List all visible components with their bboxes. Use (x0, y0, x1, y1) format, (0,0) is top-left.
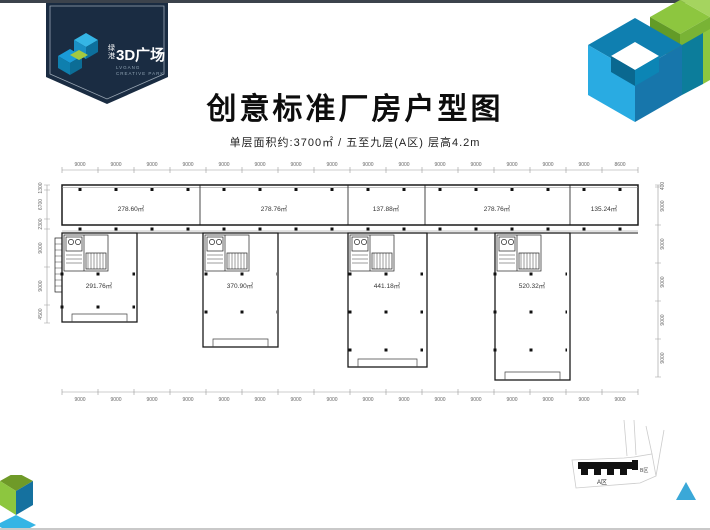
dim-label: 9000 (74, 397, 85, 403)
area-label: 291.76㎡ (86, 281, 113, 290)
dim-label: 9000 (660, 314, 666, 325)
dim-label: 9000 (254, 162, 265, 168)
dim-label: 9000 (362, 162, 373, 168)
north-arrow-icon (676, 482, 696, 500)
dim-label: 9000 (146, 162, 157, 168)
title-block: 创意标准厂房户型图 单层面积约:3700㎡ / 五至九层(A区) 层高4.2m (0, 84, 710, 150)
dim-label: 9000 (38, 242, 44, 253)
logo-cn-small-2: 港 (108, 51, 115, 60)
dim-label: 9000 (660, 238, 666, 249)
area-label: 370.90㎡ (227, 281, 254, 290)
dim-label: 9000 (434, 162, 445, 168)
dim-label: 9000 (218, 162, 229, 168)
dim-label: 9000 (542, 162, 553, 168)
brochure-page: 绿 港 3D广场 LVGANG CREATIVE PARK 创意标准厂房户型图 … (0, 0, 710, 530)
area-label: 137.88㎡ (373, 204, 400, 213)
dim-label: 9000 (218, 397, 229, 403)
dim-label: 9000 (470, 397, 481, 403)
dim-label: 9000 (254, 397, 265, 403)
dim-label: 9000 (470, 162, 481, 168)
dim-label: 9000 (38, 280, 44, 291)
dim-label: 2300 (38, 218, 44, 229)
dim-label: 9000 (506, 162, 517, 168)
dim-label: 9000 (146, 397, 157, 403)
dim-label: 9000 (398, 162, 409, 168)
dim-label: 9000 (182, 397, 193, 403)
dim-label: 9000 (398, 397, 409, 403)
zone-a-label: A区 (597, 479, 607, 486)
logo-cn-large: 3D广场 (116, 46, 165, 64)
zone-b-label: B区 (640, 468, 648, 474)
building-walls (55, 185, 638, 380)
dim-label: 9000 (660, 352, 666, 363)
service-cores (64, 235, 541, 271)
dim-label: 9000 (578, 397, 589, 403)
dim-label: 400 (660, 182, 666, 191)
area-label: 278.76㎡ (261, 204, 288, 213)
page-subtitle: 单层面积约:3700㎡ / 五至九层(A区) 层高4.2m (0, 134, 710, 150)
area-label: 135.24㎡ (591, 204, 618, 213)
area-label: 441.18㎡ (374, 281, 401, 290)
dim-label: 9000 (290, 397, 301, 403)
dim-label: 4500 (38, 308, 44, 319)
page-title: 创意标准厂房户型图 (0, 84, 710, 128)
area-label: 278.76㎡ (484, 204, 511, 213)
bottom-left-cubes-decoration-icon (0, 475, 70, 530)
dim-label: 9000 (110, 162, 121, 168)
dim-label: 9000 (578, 162, 589, 168)
keyplan-site-outline (572, 420, 664, 488)
logo-cn-small-1: 绿 (108, 43, 115, 52)
logo-en-line1: LVGANG (116, 65, 140, 70)
dim-label: 9000 (290, 162, 301, 168)
dim-label: 6700 (38, 199, 44, 210)
dim-label: 9000 (110, 397, 121, 403)
dim-label: 9000 (542, 397, 553, 403)
area-label: 520.32㎡ (519, 281, 546, 290)
dim-label: 9000 (182, 162, 193, 168)
dim-label: 9000 (506, 397, 517, 403)
dim-label: 9000 (326, 397, 337, 403)
floorplan-drawing: 9000 9000 9000 9000 9000 9000 9000 9000 … (25, 152, 690, 417)
keyplan-building-footprint (578, 460, 638, 475)
dim-label: 9000 (434, 397, 445, 403)
dim-label: 9000 (660, 276, 666, 287)
keyplan: B区 A区 (560, 420, 680, 515)
logo-en-line2: CREATIVE PARK (116, 71, 164, 76)
dim-label: 1300 (38, 182, 44, 193)
dim-label: 9000 (326, 162, 337, 168)
dim-label: 9000 (74, 162, 85, 168)
dim-label: 8600 (614, 162, 625, 168)
dim-label: 9000 (362, 397, 373, 403)
dim-label: 9000 (614, 397, 625, 403)
area-label: 278.60㎡ (118, 204, 145, 213)
dim-label: 9000 (660, 200, 666, 211)
